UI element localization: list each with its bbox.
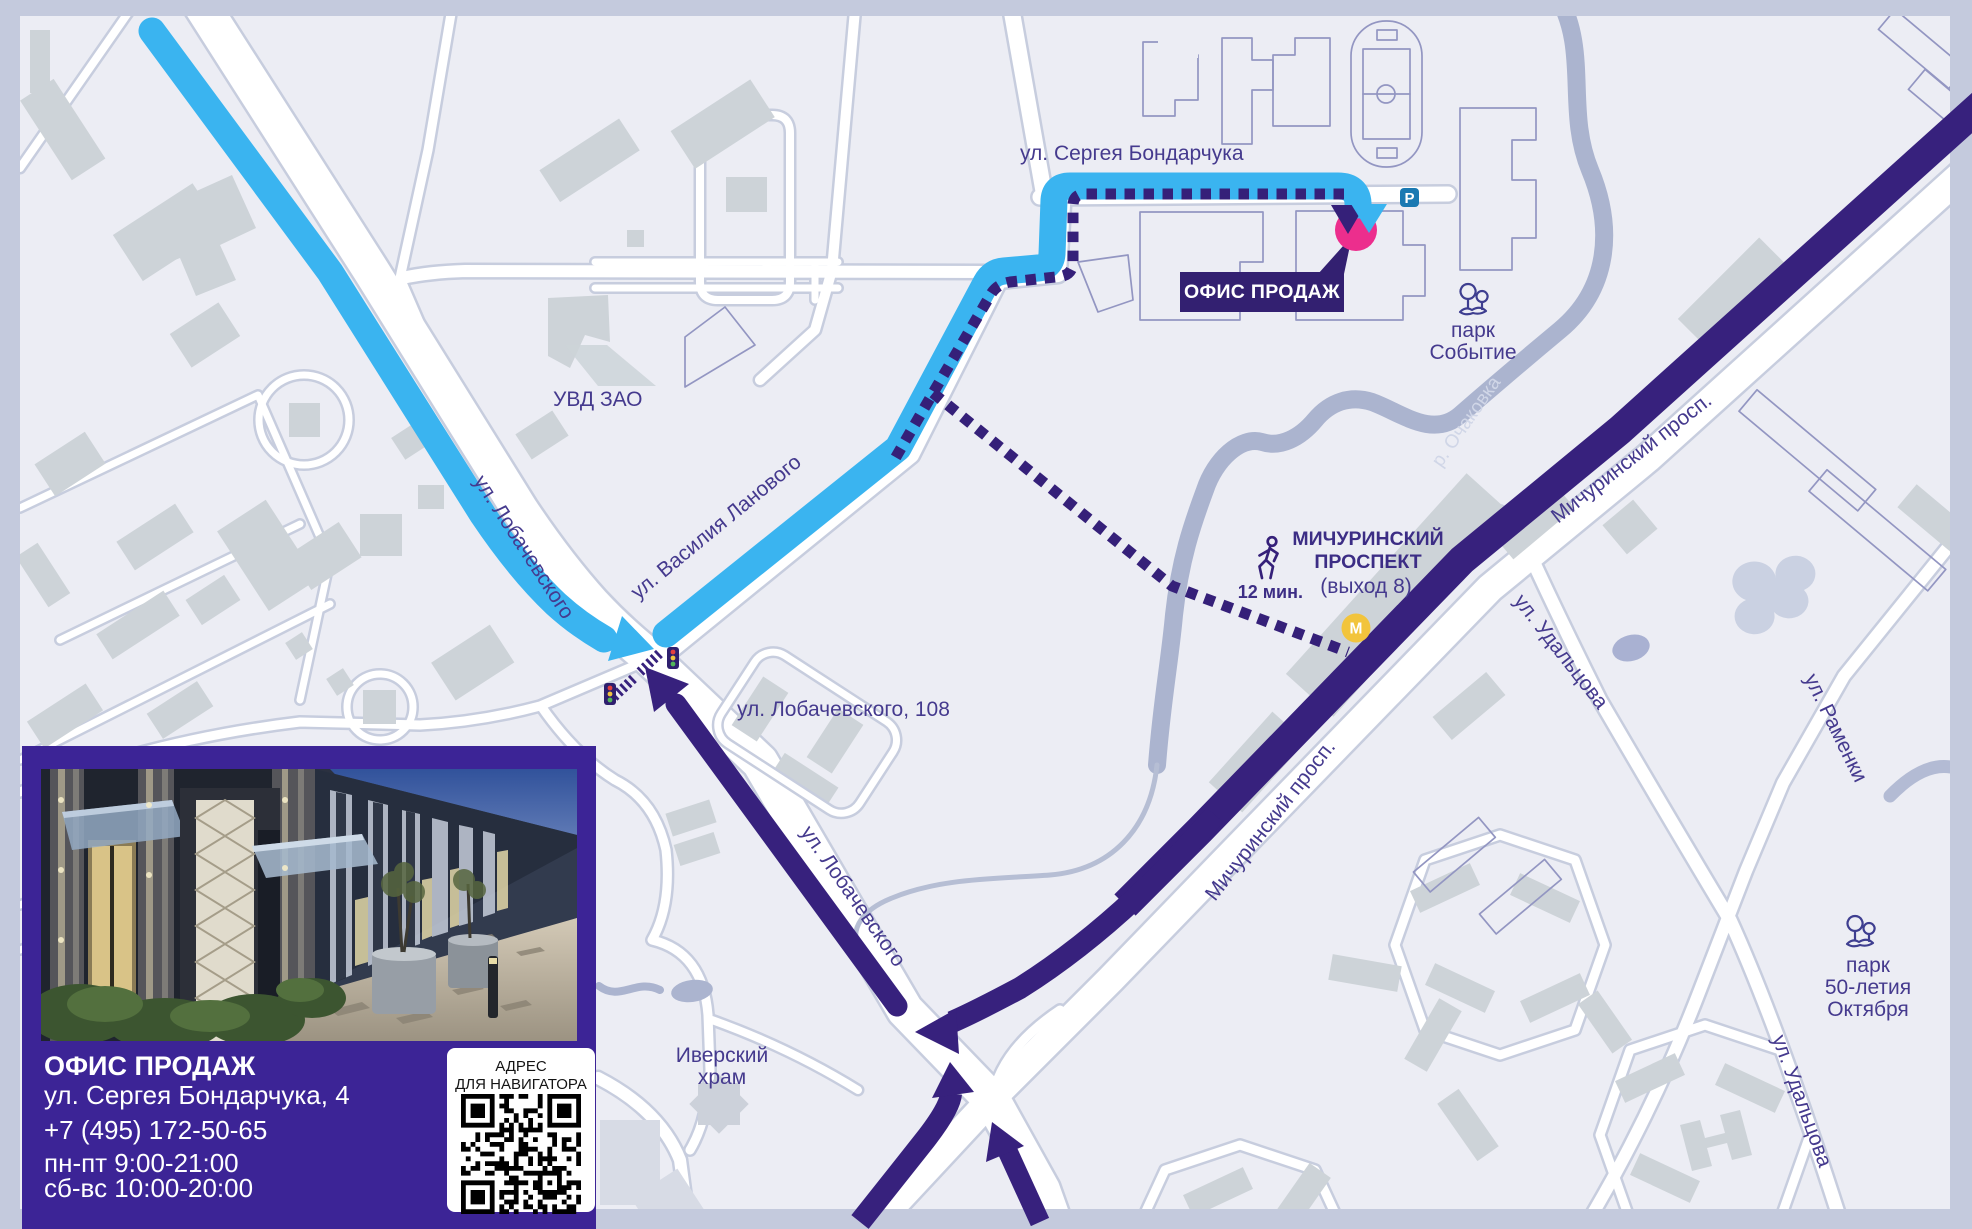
- svg-text:М: М: [1350, 621, 1363, 638]
- svg-text:ДЛЯ НАВИГАТОРА: ДЛЯ НАВИГАТОРА: [455, 1076, 587, 1093]
- svg-text:12 мин.: 12 мин.: [1238, 582, 1303, 602]
- svg-text:парк: парк: [1451, 319, 1496, 342]
- svg-text:АДРЕС: АДРЕС: [495, 1058, 547, 1075]
- svg-text:P: P: [1404, 190, 1414, 207]
- svg-text:Иверский: Иверский: [676, 1044, 769, 1067]
- svg-text:храм: храм: [698, 1066, 746, 1089]
- svg-text:Событие: Событие: [1430, 341, 1517, 364]
- svg-text:сб-вс 10:00-20:00: сб-вс 10:00-20:00: [44, 1173, 253, 1203]
- svg-text:ул. Лобачевского, 108: ул. Лобачевского, 108: [737, 698, 950, 721]
- svg-text:(выход 8): (выход 8): [1320, 575, 1412, 598]
- svg-text:МИЧУРИНСКИЙ: МИЧУРИНСКИЙ: [1292, 526, 1443, 550]
- svg-text:ОФИС ПРОДАЖ: ОФИС ПРОДАЖ: [1184, 281, 1340, 303]
- svg-text:50-летия: 50-летия: [1825, 976, 1911, 999]
- svg-text:ПРОСПЕКТ: ПРОСПЕКТ: [1314, 551, 1421, 573]
- svg-text:УВД ЗАО: УВД ЗАО: [553, 388, 643, 411]
- svg-text:ОФИС ПРОДАЖ: ОФИС ПРОДАЖ: [44, 1051, 256, 1081]
- svg-text:ул. Сергея Бондарчука: ул. Сергея Бондарчука: [1020, 142, 1244, 165]
- svg-text:ул. Сергея Бондарчука, 4: ул. Сергея Бондарчука, 4: [44, 1080, 350, 1110]
- svg-text:+7 (495) 172-50-65: +7 (495) 172-50-65: [44, 1115, 267, 1145]
- svg-text:Октября: Октября: [1827, 998, 1909, 1021]
- svg-text:парк: парк: [1846, 954, 1891, 977]
